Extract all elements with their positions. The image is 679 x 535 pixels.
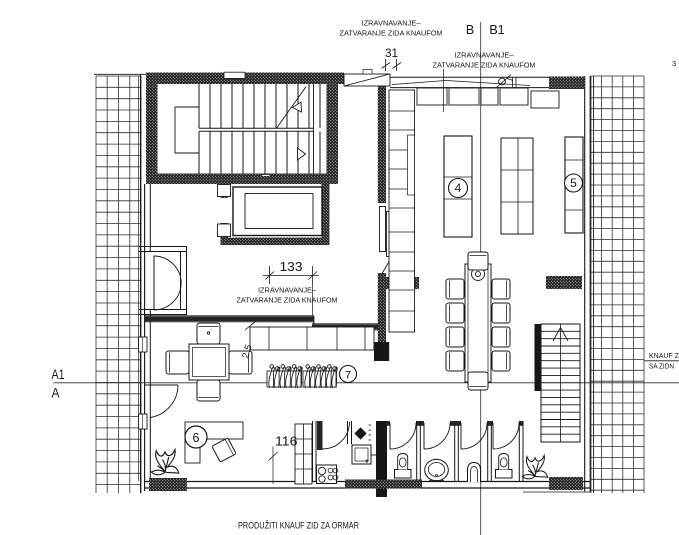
svg-text:31: 31 xyxy=(385,46,398,60)
svg-text:B1: B1 xyxy=(489,23,504,37)
svg-text:ZATVARANJE ZIDA KNAUFOM: ZATVARANJE ZIDA KNAUFOM xyxy=(340,31,443,38)
svg-text:SA ZIDN: SA ZIDN xyxy=(649,362,674,371)
svg-text:ZATVARANJE ZIDA KNAUFOM: ZATVARANJE ZIDA KNAUFOM xyxy=(237,298,338,305)
svg-text:KNAUF Z: KNAUF Z xyxy=(649,351,679,360)
svg-text:IZRAVNAVANJE–: IZRAVNAVANJE– xyxy=(455,53,514,60)
svg-text:4: 4 xyxy=(455,181,462,195)
svg-text:A: A xyxy=(52,385,61,401)
svg-text:133: 133 xyxy=(280,259,303,274)
svg-text:ZATVARANJE ZIDA KNAUFOM: ZATVARANJE ZIDA KNAUFOM xyxy=(433,63,536,70)
svg-text:3: 3 xyxy=(672,59,676,68)
svg-text:116: 116 xyxy=(275,435,298,449)
svg-text:IZRAVNAVANJE–: IZRAVNAVANJE– xyxy=(362,21,421,28)
svg-text:B: B xyxy=(466,23,474,37)
svg-text:6: 6 xyxy=(193,431,200,445)
svg-text:5: 5 xyxy=(570,176,577,190)
svg-text:7: 7 xyxy=(345,369,351,381)
svg-text:A1: A1 xyxy=(52,366,65,382)
svg-text:IZRAVNAVANJE–: IZRAVNAVANJE– xyxy=(258,288,316,295)
svg-text:PRODUŽITI KNAUF ZID ZA ORM: PRODUŽITI KNAUF ZID ZA ORMAR xyxy=(238,521,359,531)
